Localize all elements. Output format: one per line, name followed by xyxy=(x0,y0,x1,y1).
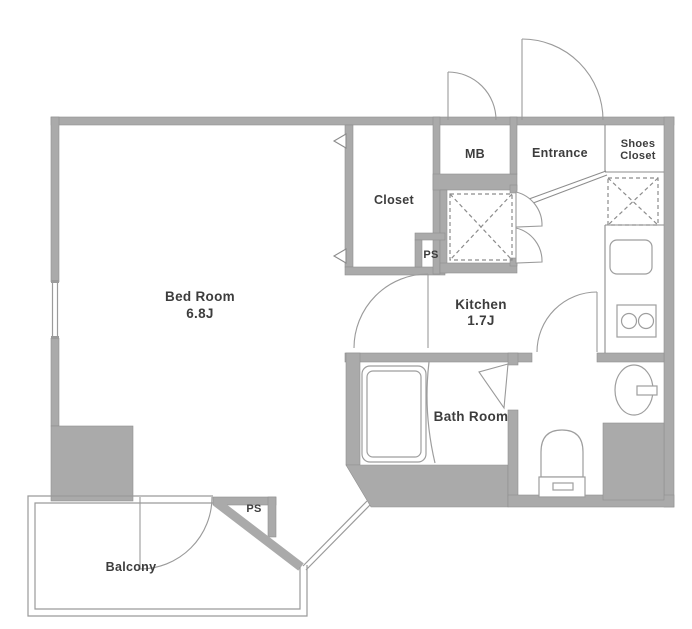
closet-door-arrows xyxy=(334,134,346,263)
bedroom-size-label: 6.8J xyxy=(186,306,213,321)
balcony-border xyxy=(28,496,370,616)
wall-left-lower xyxy=(51,338,59,426)
pipe-shaft-upper-label: PS xyxy=(423,249,438,261)
closet-door-arrow-top xyxy=(334,134,346,148)
kitchen-washroom-door xyxy=(537,292,597,352)
floor-plan-canvas: Bed Room 6.8J Closet MB Entrance Shoes C… xyxy=(0,0,692,629)
wall-left-upper xyxy=(51,117,59,282)
wall-mb-bottom xyxy=(433,174,517,190)
wall-bed-bath-divider xyxy=(346,353,360,465)
stove xyxy=(617,305,656,337)
wall-washroom-left xyxy=(508,410,518,497)
wall-right-block xyxy=(603,423,664,500)
wall-bath-bottom-band xyxy=(346,465,508,507)
wall-closet-bottom xyxy=(345,267,445,275)
bathtub xyxy=(362,366,426,462)
pipe-shaft-lower-label: PS xyxy=(246,503,261,515)
rail-diagonal-2 xyxy=(306,505,370,570)
wall-kitchen-bottom-left xyxy=(345,353,532,362)
wall-washer-left xyxy=(440,190,447,273)
kitchen-sink xyxy=(610,240,652,274)
wall-ps-upper-top xyxy=(415,233,445,240)
wall-ps-lower-right xyxy=(268,497,276,537)
wall-washer-bottom xyxy=(440,263,517,273)
wall-mb-right xyxy=(510,117,517,174)
balcony-label: Balcony xyxy=(106,560,157,574)
closet-door-arrow-bottom xyxy=(334,249,346,263)
toilet xyxy=(539,430,585,497)
balcony-door xyxy=(140,497,212,569)
wall-kitchen-bottom-right xyxy=(597,353,664,362)
wall-ps-upper-left xyxy=(415,240,422,267)
entrance-label: Entrance xyxy=(532,146,588,160)
bedroom-label: Bed Room xyxy=(165,289,235,304)
washer-space-doors xyxy=(516,192,542,263)
wash-basin xyxy=(615,365,657,415)
mb-door xyxy=(448,72,496,120)
kitchen-size-label: 1.7J xyxy=(467,313,494,328)
kitchen-label: Kitchen xyxy=(455,297,507,312)
meter-box-label: MB xyxy=(465,147,485,161)
shoes-closet-label-line2: Closet xyxy=(620,150,655,162)
wall-pillar xyxy=(51,426,133,501)
rail-diagonal-1 xyxy=(303,501,367,566)
wall-right xyxy=(664,117,674,507)
balcony-outer-rail xyxy=(28,496,307,616)
entrance-door xyxy=(522,39,603,120)
bedroom-kitchen-door xyxy=(354,274,428,348)
bath-folding-door xyxy=(479,364,508,408)
storage-space xyxy=(608,178,658,225)
wall-top xyxy=(51,117,674,125)
bathroom-label: Bath Room xyxy=(434,409,509,424)
closet-label: Closet xyxy=(374,193,415,207)
wall-washroom-left-stub xyxy=(508,353,518,365)
floor-plan: Bed Room 6.8J Closet MB Entrance Shoes C… xyxy=(0,0,692,629)
washer-space xyxy=(450,194,512,260)
shoes-closet-label-line1: Shoes xyxy=(621,138,656,150)
window-left xyxy=(50,280,60,339)
balcony-inner-rail xyxy=(35,503,300,609)
